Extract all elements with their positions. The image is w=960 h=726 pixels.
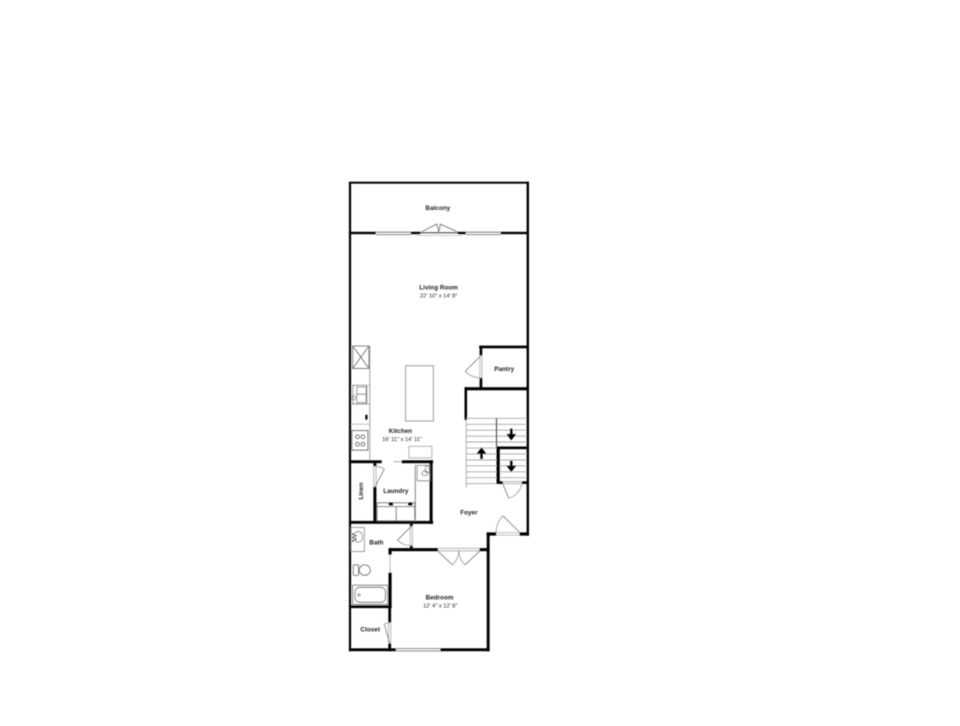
svg-text:12' 4" x 12' 8": 12' 4" x 12' 8" (423, 604, 457, 610)
svg-text:Bedroom: Bedroom (426, 595, 454, 602)
svg-text:Balcony: Balcony (425, 205, 450, 212)
svg-text:Bath: Bath (369, 540, 383, 547)
svg-text:Laundry: Laundry (383, 488, 409, 495)
svg-text:Pantry: Pantry (494, 366, 514, 373)
svg-text:Living Room: Living Room (419, 284, 458, 291)
svg-text:Foyer: Foyer (460, 510, 478, 517)
svg-text:Linen: Linen (358, 482, 365, 499)
svg-text:22' 10" x 14' 8": 22' 10" x 14' 8" (420, 293, 458, 299)
svg-text:Closet: Closet (360, 627, 380, 634)
svg-text:Kitchen: Kitchen (389, 428, 413, 435)
svg-text:16' 11" x 14' 11": 16' 11" x 14' 11" (382, 437, 422, 443)
